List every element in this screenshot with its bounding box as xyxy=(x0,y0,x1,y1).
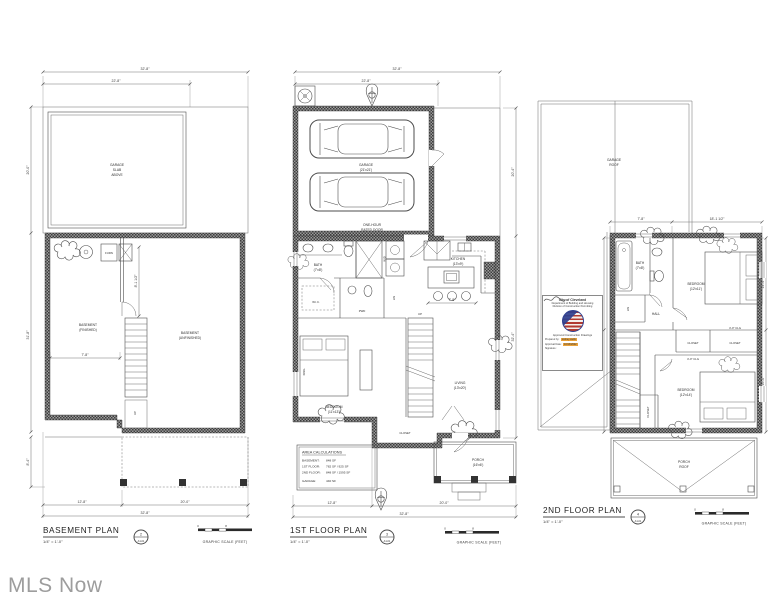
dim-label: 20'-0" xyxy=(440,501,450,505)
revision-cloud xyxy=(717,238,738,254)
dim-label: 18'-1 1/2" xyxy=(710,217,726,221)
ceiling-note: 4'-0" CLG xyxy=(687,357,699,361)
basement-interior: UP FURN BASEMENT (FINISHED) BASEMENT (UN… xyxy=(54,238,201,428)
floor-drain-icon xyxy=(80,246,93,259)
area-row-value: 848 SF xyxy=(326,459,336,463)
plan-scale: 1/4" = 1'-0" xyxy=(543,519,563,524)
dim-label: 22'-8" xyxy=(362,79,372,83)
bedroom-label: BEDROOM xyxy=(687,282,704,286)
area-row-value: 440 SF xyxy=(326,479,336,483)
bathtub-icon xyxy=(616,241,632,291)
bedroom-label: (11'x13') xyxy=(328,410,340,414)
dim-label: 20'-0" xyxy=(181,500,191,504)
bedroom-label: BEDROOM xyxy=(677,388,694,392)
kitchen-label: KITCHEN xyxy=(451,257,466,261)
garage-slab-outline: GARAGE SLAB ABOVE xyxy=(43,107,248,233)
second-floor-stairs xyxy=(616,332,640,428)
plan-scale: 1/4" = 1'-0" xyxy=(43,539,63,544)
first-floor-windows xyxy=(292,235,501,430)
graphic-scale-bar xyxy=(445,531,499,534)
toilet-icon xyxy=(650,271,664,282)
area-row-label: GARAGE: xyxy=(302,479,316,483)
bed-icon xyxy=(700,372,755,422)
scale-eight: 8 xyxy=(722,508,724,512)
furnace-label: FURN xyxy=(105,251,113,255)
porch-post xyxy=(179,479,186,486)
bed-icon xyxy=(300,336,348,396)
linen-label: LIN xyxy=(392,296,396,300)
bedroom-label: (12'x14') xyxy=(680,393,692,397)
basement-walls xyxy=(45,233,245,433)
area-row-label: 2ND FLOOR: xyxy=(302,471,321,475)
porch-post xyxy=(471,476,478,483)
first-floor-bedroom: KING BEDROOM (11'x13') xyxy=(300,336,372,414)
plan-scale: 1/4" = 1'-0" xyxy=(290,539,310,544)
plan-title: 2ND FLOOR PLAN xyxy=(543,506,622,515)
bath-label: (7'x8') xyxy=(314,268,323,272)
bath-label: BATH xyxy=(636,261,645,265)
exhaust-fan-icon xyxy=(295,86,315,106)
porch-roof-label: ROOF xyxy=(679,465,689,469)
stamp-prepared-label: Prepared by: xyxy=(545,338,559,341)
dresser-icon xyxy=(360,350,372,390)
kitchen-island xyxy=(428,267,474,301)
scale-zero: 0 xyxy=(197,524,199,528)
wic-label: W.I.C. xyxy=(312,300,320,304)
rated-door-note: RATED DOOR xyxy=(361,228,383,232)
dim-label: 32'-4" xyxy=(511,332,515,342)
dim-label: 20'-0" xyxy=(26,165,30,175)
kitchen-label: (13'x9') xyxy=(453,262,464,266)
porch-post xyxy=(120,479,127,486)
dim-label: 22'-8" xyxy=(112,79,122,83)
north-arrow-icon xyxy=(366,84,378,106)
rated-door-note: ONE-HOUR xyxy=(363,223,382,227)
porch-label: (16'x6') xyxy=(473,463,484,467)
note-cloud xyxy=(54,241,80,260)
bath-label: (7'x8') xyxy=(636,266,645,270)
area-calculations-box: AREA CALCULATIONS BASEMENT: 848 SF 1ST F… xyxy=(297,445,377,490)
water-heater-icon xyxy=(119,244,132,261)
first-floor-plan: 32'-8" 22'-8" 20'-4" 32'-4" 7'-8" 12'-8"… xyxy=(288,67,518,545)
area-row-label: BASEMENT: xyxy=(302,459,320,463)
ref-sheet: A1-01 xyxy=(635,520,642,523)
stamp-division: Division of Construction Permitting xyxy=(545,305,600,308)
scale-zero: 0 xyxy=(694,508,696,512)
second-floor-interior: BATH (7'x8') LIN HALL BEDROOM (12'x11') … xyxy=(615,238,762,428)
graphic-scale-label: GRAPHIC SCALE (FEET) xyxy=(203,540,248,544)
dim-label: 20'-4" xyxy=(511,167,515,177)
wd-label: W/D xyxy=(383,256,387,261)
ref-number: 3 xyxy=(386,533,388,537)
garage-slab-label: GARAGE xyxy=(110,163,125,167)
toilet-icon xyxy=(364,286,372,297)
dim-label: 32'-8" xyxy=(393,67,403,71)
basement-room-label: BASEMENT xyxy=(181,331,199,335)
mls-watermark: MLS Now xyxy=(8,574,103,598)
first-floor-porch: PORCH (16'x6') xyxy=(434,433,516,500)
ref-sheet: A1-01 xyxy=(138,540,145,543)
pwd-label: PWD xyxy=(359,309,366,313)
stamp-signature-label: Signature: xyxy=(545,347,556,350)
garage-label: (21'x21') xyxy=(360,168,372,172)
sink-icon xyxy=(652,248,662,256)
porch-post xyxy=(509,476,516,483)
basement-room-label: BASEMENT xyxy=(79,323,97,327)
hall-label: HALL xyxy=(652,312,660,316)
dim-label: 32'-8" xyxy=(141,67,151,71)
stairs-up-label: UP xyxy=(418,312,422,316)
sink-icon xyxy=(323,244,333,252)
roof-post xyxy=(614,486,620,492)
ceiling-note: 4'-0" CLG xyxy=(729,326,741,330)
dim-label: 32'-8" xyxy=(400,512,410,516)
stool-icon xyxy=(434,292,443,301)
bedroom-label: (12'x11') xyxy=(690,287,702,291)
king-label: KING xyxy=(302,369,306,376)
floor-plan-drawing: 32'-8" 22'-8" 20'-0" 31'-8" 8'-4" 7'-8" … xyxy=(0,0,768,608)
area-calc-title: AREA CALCULATIONS xyxy=(302,451,342,455)
garage-entry-door xyxy=(404,235,428,258)
porch-post xyxy=(434,476,441,483)
toilet-icon xyxy=(344,241,353,257)
car-icon xyxy=(310,173,414,211)
plan-title: BASEMENT PLAN xyxy=(43,526,119,535)
sink-icon xyxy=(348,286,356,294)
north-arrow-icon xyxy=(375,488,387,510)
basement-room-label: (FINISHED) xyxy=(79,328,97,332)
garage-label: GARAGE xyxy=(359,163,374,167)
dim-label: 7'-8" xyxy=(82,353,90,357)
second-floor-walls xyxy=(610,233,762,433)
second-floor-title-block: 2ND FLOOR PLAN 1/4" = 1'-0" 4 A1-01 0 8 … xyxy=(543,506,749,526)
garage-slab-label: ABOVE xyxy=(111,173,123,177)
shower-shaft xyxy=(356,241,382,278)
ref-number: 2 xyxy=(140,533,142,537)
second-floor-dimensions: 7'-8" 18'-1 1/2" 14'-4" 16'-0" xyxy=(603,217,768,434)
closet-label: CLOSET xyxy=(687,341,698,345)
first-floor-closet: CLOSET xyxy=(399,406,464,435)
porch-label: PORCH xyxy=(472,458,485,462)
first-floor-stairs: UP xyxy=(406,312,435,417)
garage-roof-label: GARAGE xyxy=(607,158,622,162)
stamp-approved-text: Approved Construction Drawings xyxy=(545,334,600,337)
dim-label: 12'-8" xyxy=(328,501,338,505)
revision-cloud xyxy=(719,357,740,373)
fridge-icon xyxy=(424,241,450,260)
porch-roof-outline: PORCH ROOF xyxy=(611,438,757,498)
bed-icon xyxy=(705,252,762,304)
stove-icon xyxy=(484,262,495,279)
scale-eight: 8 xyxy=(225,524,227,528)
first-floor-title-block: 1ST FLOOR PLAN 1/4" = 1'-0" 3 A1-01 0 8 … xyxy=(290,526,501,545)
scale-zero: 0 xyxy=(444,527,446,531)
first-floor-bath: BATH (7'x8') W/D xyxy=(298,241,404,293)
first-floor-wic-pwd: W.I.C. PWD LIN xyxy=(298,278,406,318)
scale-eight: 8 xyxy=(472,527,474,531)
graphic-scale-label: GRAPHIC SCALE (FEET) xyxy=(702,522,747,526)
ref-number: 4 xyxy=(637,513,639,517)
roof-post xyxy=(680,486,686,492)
approval-stamp: City of Cleveland Department of Building… xyxy=(542,295,603,371)
signature-icon xyxy=(543,296,567,303)
closet-label: CLOSET xyxy=(646,406,650,417)
garage-slab-label: SLAB xyxy=(113,168,122,172)
washer-dryer-icon xyxy=(386,241,404,276)
stairs-up-label: UP xyxy=(133,411,137,415)
closet-label: CLOSET xyxy=(399,431,410,435)
car-icon xyxy=(310,120,414,158)
dim-label: 32'-8" xyxy=(141,511,151,515)
stamp-date-value: 10/13/2022 xyxy=(563,343,578,346)
stamp-date-label: Approval Date: xyxy=(545,343,562,346)
basement-dimensions: 32'-8" 22'-8" 20'-0" 31'-8" 8'-4" 7'-8" … xyxy=(26,67,250,518)
dim-label: 12'-8" xyxy=(78,500,88,504)
bath-label: BATH xyxy=(314,263,323,267)
sink-icon xyxy=(303,244,313,252)
city-seal-icon xyxy=(562,310,584,332)
roof-post xyxy=(748,486,754,492)
closet-label: CLOSET xyxy=(729,341,740,345)
floor-plan-sheet: 32'-8" 22'-8" 20'-0" 31'-8" 8'-4" 7'-8" … xyxy=(0,0,768,608)
garage-roof-label: ROOF xyxy=(609,163,619,167)
basement-title-block: BASEMENT PLAN 1/4" = 1'-0" 2 A1-01 0 8 G… xyxy=(43,524,252,544)
living-label: LIVING xyxy=(455,381,466,385)
dim-label: 8'-4" xyxy=(26,458,30,466)
basement-porch xyxy=(45,437,248,487)
porch-post xyxy=(240,479,247,486)
basement-room-label: (UNFINISHED) xyxy=(179,336,201,340)
stool-icon xyxy=(462,292,471,301)
dim-label: 8'-1 1/2" xyxy=(134,274,138,288)
linen-label: LIN xyxy=(626,307,630,311)
dim-label: 31'-8" xyxy=(26,330,30,340)
second-floor-windows xyxy=(636,232,766,434)
first-floor-kitchen: KITCHEN (13'x9') xyxy=(424,241,495,301)
graphic-scale-bar xyxy=(695,512,749,515)
garage-service-door xyxy=(429,150,444,166)
dim-label: 7'-8" xyxy=(638,217,646,221)
area-row-value: 848 SF / 1595 SF xyxy=(326,471,350,475)
graphic-scale-label: GRAPHIC SCALE (FEET) xyxy=(457,541,502,545)
graphic-scale-bar xyxy=(198,529,252,532)
stamp-prepared-value: rodney wells xyxy=(561,338,577,341)
porch-roof-label: PORCH xyxy=(678,460,691,464)
area-row-value: 782 SF / 925 SF xyxy=(326,465,349,469)
area-row-label: 1ST FLOOR: xyxy=(302,465,320,469)
porch-steps xyxy=(452,483,486,492)
basement-plan: 32'-8" 22'-8" 20'-0" 31'-8" 8'-4" 7'-8" … xyxy=(26,67,252,544)
plan-title: 1ST FLOOR PLAN xyxy=(290,526,367,535)
ref-sheet: A1-01 xyxy=(384,540,391,543)
living-label: (13'x20') xyxy=(454,386,466,390)
